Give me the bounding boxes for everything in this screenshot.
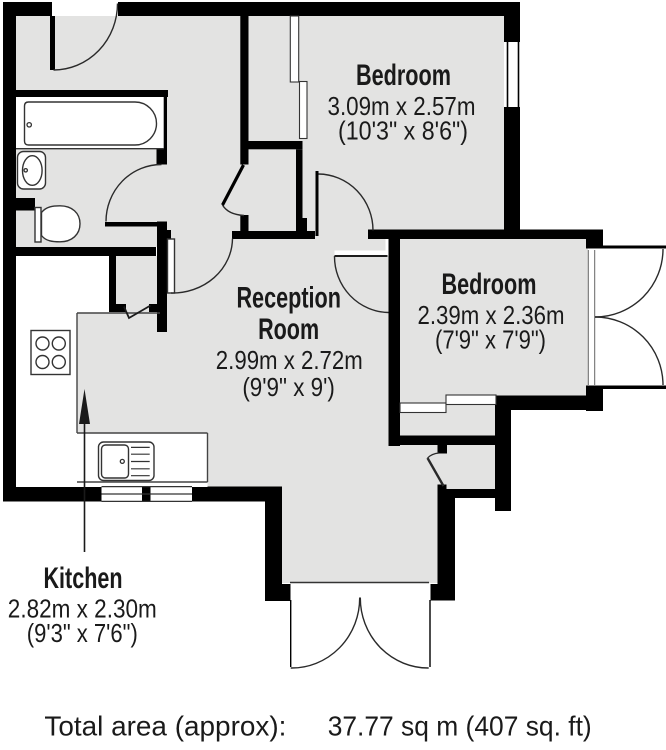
svg-text:Room: Room: [258, 313, 319, 346]
svg-text:(9'9" x 9'): (9'9" x 9'): [242, 372, 335, 402]
svg-text:Kitchen: Kitchen: [44, 562, 123, 595]
svg-text:Bedroom: Bedroom: [442, 268, 537, 301]
svg-text:Reception: Reception: [236, 282, 341, 315]
svg-text:Bedroom: Bedroom: [356, 59, 451, 92]
svg-text:(9'3" x 7'6"): (9'3" x 7'6"): [27, 618, 138, 648]
svg-text:Total area (approx):: Total area (approx):: [44, 711, 286, 742]
svg-text:37.77 sq m (407 sq. ft): 37.77 sq m (407 sq. ft): [328, 711, 592, 742]
svg-text:2.99m x 2.72m: 2.99m x 2.72m: [216, 345, 363, 375]
svg-text:(7'9" x 7'9"): (7'9" x 7'9"): [435, 325, 546, 355]
svg-text:(10'3" x 8'6"): (10'3" x 8'6"): [338, 116, 468, 146]
